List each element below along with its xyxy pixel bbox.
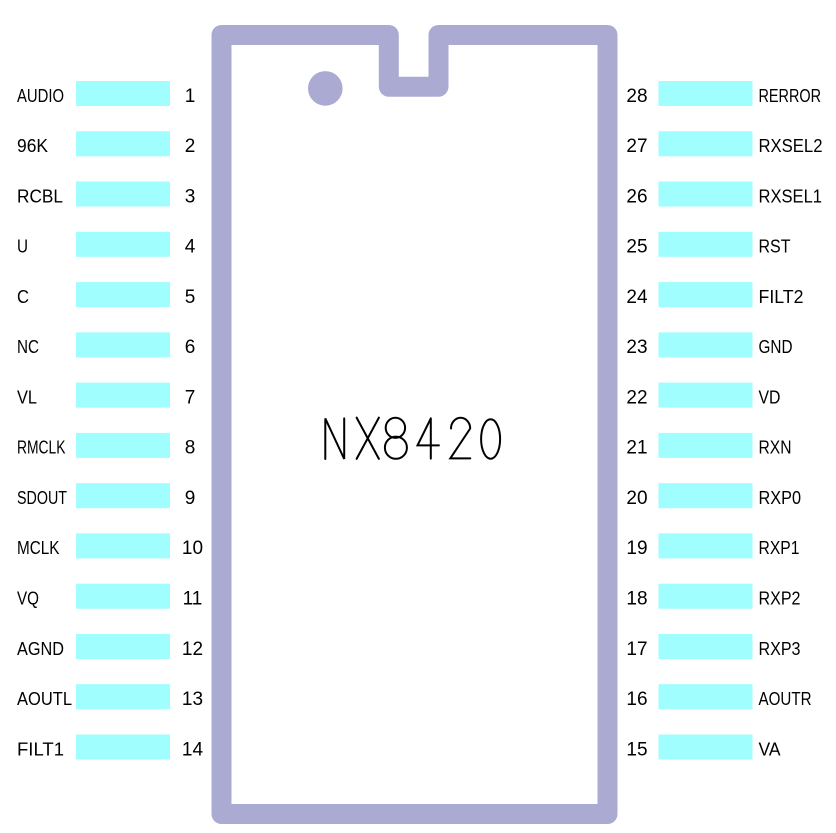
svg-text:26: 26 — [626, 186, 647, 207]
svg-text:NC: NC — [17, 337, 39, 357]
svg-text:MCLK: MCLK — [17, 538, 60, 558]
svg-text:5: 5 — [185, 287, 196, 308]
svg-text:8: 8 — [185, 438, 196, 459]
svg-text:7: 7 — [185, 387, 196, 408]
svg-text:18: 18 — [626, 589, 647, 610]
svg-text:14: 14 — [182, 739, 204, 760]
svg-text:6: 6 — [185, 337, 196, 358]
svg-text:RCBL: RCBL — [17, 186, 63, 206]
svg-text:RXP3: RXP3 — [759, 639, 801, 659]
svg-text:SDOUT: SDOUT — [17, 488, 67, 508]
svg-text:3: 3 — [185, 186, 196, 207]
svg-text:AGND: AGND — [17, 639, 64, 659]
svg-text:96K: 96K — [17, 136, 48, 156]
svg-text:10: 10 — [182, 538, 203, 559]
svg-text:19: 19 — [626, 538, 647, 559]
svg-text:21: 21 — [626, 438, 647, 459]
svg-text:VL: VL — [17, 387, 37, 407]
svg-text:C: C — [17, 287, 29, 307]
svg-text:AOUTL: AOUTL — [17, 689, 72, 709]
svg-text:AOUTR: AOUTR — [759, 689, 812, 709]
svg-text:GND: GND — [759, 337, 793, 357]
svg-text:RXP2: RXP2 — [759, 589, 801, 609]
svg-text:13: 13 — [182, 689, 203, 710]
svg-text:28: 28 — [626, 86, 647, 107]
svg-text:RXP0: RXP0 — [759, 488, 802, 508]
svg-text:2: 2 — [185, 136, 196, 157]
svg-text:RMCLK: RMCLK — [17, 438, 66, 458]
svg-text:24: 24 — [626, 287, 648, 308]
svg-text:AUDIO: AUDIO — [17, 86, 64, 106]
svg-text:25: 25 — [626, 237, 647, 258]
svg-text:FILT2: FILT2 — [759, 287, 804, 307]
svg-text:RXP1: RXP1 — [759, 538, 800, 558]
svg-text:23: 23 — [626, 337, 647, 358]
svg-text:12: 12 — [182, 639, 203, 660]
svg-text:16: 16 — [626, 689, 647, 710]
svg-text:4: 4 — [185, 237, 196, 258]
svg-text:RST: RST — [759, 237, 791, 257]
svg-text:RXN: RXN — [759, 438, 792, 458]
svg-text:VA: VA — [759, 739, 781, 759]
svg-text:RXSEL1: RXSEL1 — [759, 186, 823, 206]
svg-text:20: 20 — [626, 488, 647, 509]
svg-text:FILT1: FILT1 — [17, 739, 64, 759]
svg-text:VQ: VQ — [17, 589, 39, 609]
svg-text:RERROR: RERROR — [759, 86, 822, 106]
svg-text:11: 11 — [183, 589, 203, 610]
svg-text:22: 22 — [626, 387, 647, 408]
svg-text:27: 27 — [626, 136, 647, 157]
svg-text:17: 17 — [626, 639, 647, 660]
svg-text:RXSEL2: RXSEL2 — [759, 136, 823, 156]
svg-text:U: U — [17, 237, 28, 257]
svg-text:1: 1 — [185, 86, 196, 107]
svg-text:9: 9 — [185, 488, 196, 509]
svg-text:15: 15 — [626, 739, 647, 760]
svg-text:VD: VD — [759, 387, 781, 407]
